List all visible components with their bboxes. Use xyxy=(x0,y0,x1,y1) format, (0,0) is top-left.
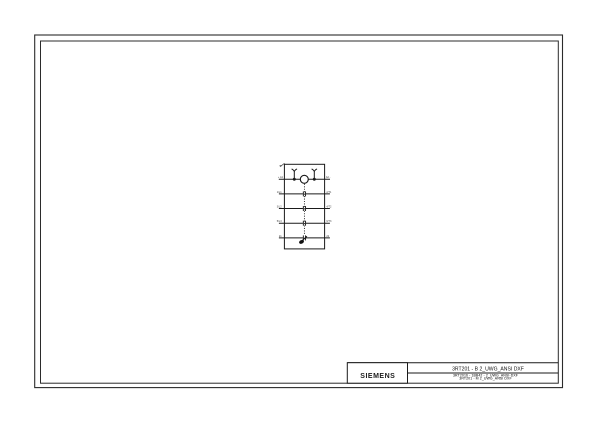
svg-text:1/L1: 1/L1 xyxy=(277,191,282,194)
svg-text:2/T1: 2/T1 xyxy=(326,191,332,194)
svg-text:A2 -: A2 - xyxy=(326,176,331,179)
svg-text:3/L2: 3/L2 xyxy=(277,206,282,209)
svg-text:5/L3: 5/L3 xyxy=(277,220,282,223)
svg-text:4/T2: 4/T2 xyxy=(326,206,332,209)
svg-text:+ A1: + A1 xyxy=(278,176,284,179)
svg-text:3RT201 - B 2_UWG_ANSI DXF: 3RT201 - B 2_UWG_ANSI DXF xyxy=(452,366,524,372)
svg-text:SIEMENS: SIEMENS xyxy=(360,373,395,380)
svg-text:6/T3: 6/T3 xyxy=(326,220,332,223)
svg-text:3RT201 - M 2_UWG_ANSI DXF: 3RT201 - M 2_UWG_ANSI DXF xyxy=(459,377,511,381)
